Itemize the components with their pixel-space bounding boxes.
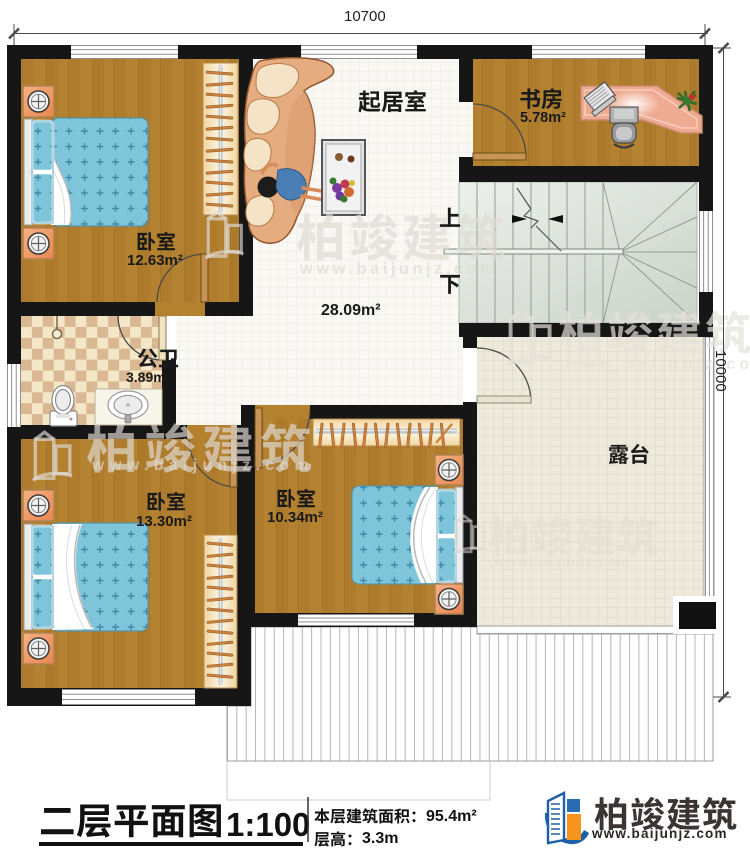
svg-text:10.34m²: 10.34m² bbox=[267, 509, 323, 526]
svg-text:28.09m²: 28.09m² bbox=[321, 302, 381, 319]
svg-text:1:100: 1:100 bbox=[226, 806, 310, 843]
svg-text:www.baijunjz.com: www.baijunjz.com bbox=[493, 554, 630, 569]
svg-text:www.baijunjz.com: www.baijunjz.com bbox=[591, 826, 728, 841]
svg-text:12.63m²: 12.63m² bbox=[127, 252, 183, 269]
svg-text:95.4m²: 95.4m² bbox=[426, 808, 477, 825]
svg-text:3.3m: 3.3m bbox=[362, 830, 398, 847]
svg-text:13.30m²: 13.30m² bbox=[136, 513, 192, 530]
svg-text:5.78m²: 5.78m² bbox=[520, 110, 566, 126]
svg-text:10000: 10000 bbox=[712, 350, 729, 392]
svg-text:3.89m²: 3.89m² bbox=[126, 369, 171, 385]
svg-text:www.baijunjz.com: www.baijunjz.com bbox=[91, 457, 314, 474]
svg-text:10700: 10700 bbox=[344, 8, 386, 25]
svg-text:www.baijunjz.com: www.baijunjz.com bbox=[299, 260, 498, 278]
